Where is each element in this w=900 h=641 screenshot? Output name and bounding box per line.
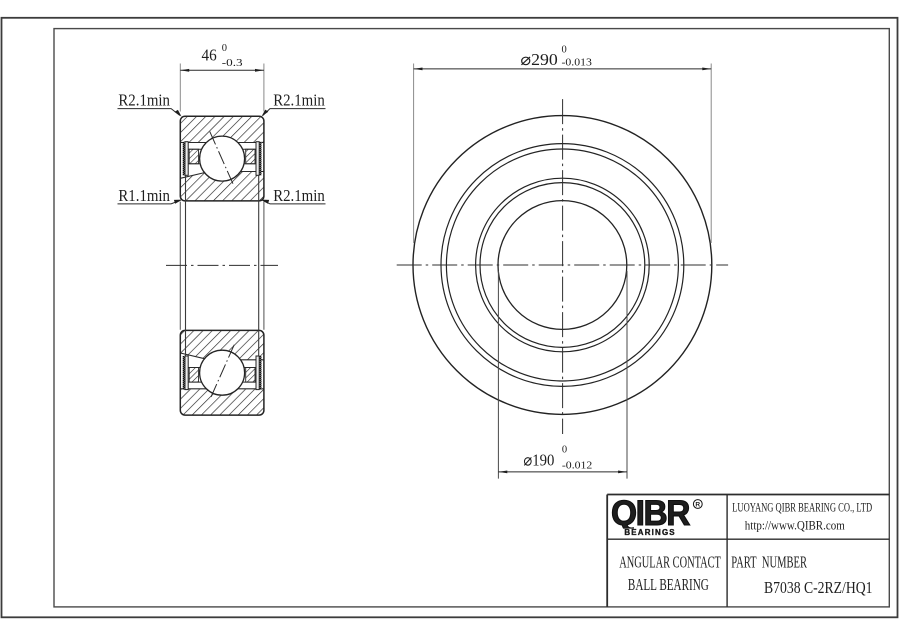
svg-text:0: 0 — [562, 44, 567, 55]
svg-text:R1.1min: R1.1min — [118, 186, 170, 205]
svg-text:BEARINGS: BEARINGS — [624, 528, 675, 537]
svg-text:0: 0 — [562, 444, 567, 455]
svg-text:-0.012: -0.012 — [562, 460, 592, 471]
svg-text:BALL BEARING: BALL BEARING — [628, 575, 709, 594]
svg-text:PART NUMBER: PART NUMBER — [731, 553, 807, 572]
svg-text:QIBR: QIBR — [611, 494, 690, 533]
svg-text:⌀190: ⌀190 — [523, 451, 554, 470]
svg-text:-0.3: -0.3 — [222, 58, 243, 69]
svg-text:http://www.QIBR.com: http://www.QIBR.com — [745, 519, 845, 533]
svg-text:0: 0 — [222, 43, 227, 54]
svg-text:⌀290: ⌀290 — [520, 50, 557, 69]
svg-text:R: R — [695, 502, 700, 509]
svg-text:B7038 C-2RZ/HQ1: B7038 C-2RZ/HQ1 — [764, 578, 873, 597]
svg-text:-0.013: -0.013 — [562, 57, 592, 68]
svg-text:R2.1min: R2.1min — [118, 91, 170, 110]
svg-text:R2.1min: R2.1min — [273, 91, 325, 110]
svg-text:46: 46 — [202, 45, 217, 64]
svg-text:LUOYANG QIBR BEARING CO., LTD: LUOYANG QIBR BEARING CO., LTD — [732, 500, 872, 514]
svg-text:ANGULAR CONTACT: ANGULAR CONTACT — [619, 553, 721, 572]
svg-text:R2.1min: R2.1min — [273, 186, 325, 205]
